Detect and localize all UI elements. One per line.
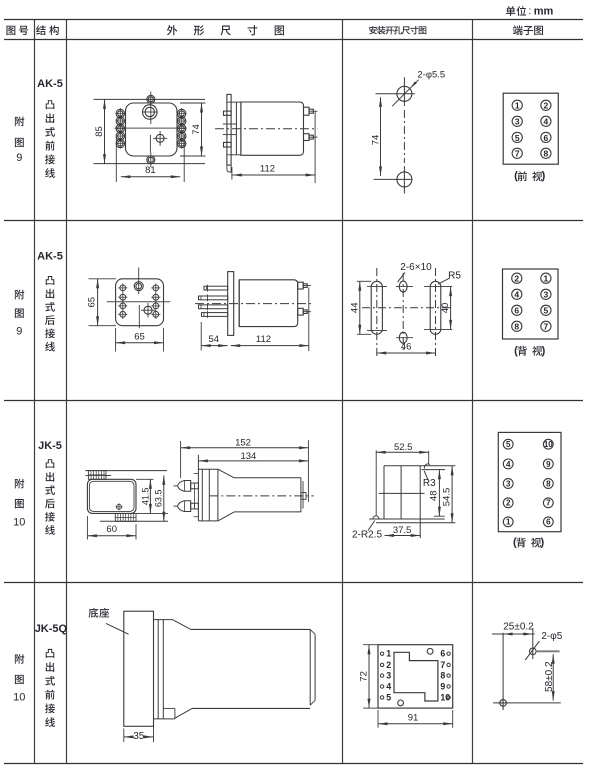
svg-text:41.5: 41.5 <box>140 488 150 506</box>
svg-text:134: 134 <box>240 451 256 462</box>
svg-text:54.5: 54.5 <box>441 488 452 507</box>
svg-text:1: 1 <box>506 518 511 527</box>
svg-text:5: 5 <box>506 440 511 449</box>
svg-text:8: 8 <box>514 322 519 332</box>
svg-text:58±0.2: 58±0.2 <box>544 661 555 692</box>
svg-text:1: 1 <box>544 274 549 284</box>
svg-text:R5: R5 <box>448 271 461 282</box>
svg-text:6: 6 <box>546 518 551 527</box>
svg-text:): ) <box>542 345 546 357</box>
svg-text:2: 2 <box>506 499 511 508</box>
svg-text:5: 5 <box>386 692 391 702</box>
svg-text:3: 3 <box>544 290 549 300</box>
svg-text:112: 112 <box>256 334 271 345</box>
svg-text:9: 9 <box>16 326 22 338</box>
svg-text:8: 8 <box>440 671 445 681</box>
svg-text:25±0.2: 25±0.2 <box>503 622 534 633</box>
svg-text:152: 152 <box>235 438 251 449</box>
svg-text:9: 9 <box>16 152 22 164</box>
svg-text:7: 7 <box>544 322 549 332</box>
svg-text:65: 65 <box>134 331 145 342</box>
svg-text:35: 35 <box>133 731 145 742</box>
svg-text:AK-5: AK-5 <box>37 251 63 263</box>
svg-text:mm: mm <box>534 5 554 17</box>
svg-text:10: 10 <box>544 440 553 449</box>
svg-text:2-R2.5: 2-R2.5 <box>352 530 382 541</box>
svg-text:(: ( <box>514 345 518 357</box>
svg-text:2-φ5: 2-φ5 <box>541 631 562 642</box>
svg-text::: : <box>528 5 531 17</box>
svg-text:): ) <box>542 170 546 182</box>
svg-text:6: 6 <box>514 306 519 316</box>
svg-text:AK-5: AK-5 <box>37 78 63 90</box>
svg-text:(: ( <box>513 537 517 549</box>
svg-text:48: 48 <box>429 491 440 502</box>
svg-text:10: 10 <box>13 516 25 528</box>
svg-text:91: 91 <box>408 712 419 723</box>
svg-text:46: 46 <box>401 342 412 353</box>
svg-text:4: 4 <box>514 290 519 300</box>
svg-text:1: 1 <box>386 649 391 659</box>
svg-text:7: 7 <box>440 660 445 670</box>
svg-text:44: 44 <box>349 303 360 314</box>
svg-text:10: 10 <box>440 692 450 702</box>
svg-text:5: 5 <box>544 306 549 316</box>
svg-text:JK-5: JK-5 <box>38 440 62 452</box>
svg-text:54: 54 <box>209 334 220 345</box>
svg-text:81: 81 <box>145 165 156 176</box>
svg-text:63.5: 63.5 <box>154 490 164 508</box>
svg-text:52.5: 52.5 <box>394 442 413 453</box>
svg-text:8: 8 <box>544 149 549 159</box>
svg-text:40: 40 <box>440 303 451 314</box>
svg-text:2: 2 <box>544 101 549 111</box>
svg-text:37.5: 37.5 <box>393 525 412 536</box>
svg-text:9: 9 <box>440 682 445 692</box>
svg-text:R3: R3 <box>423 478 436 489</box>
svg-text:3: 3 <box>386 671 391 681</box>
svg-text:72: 72 <box>358 671 369 682</box>
svg-text:9: 9 <box>546 460 551 469</box>
svg-text:65: 65 <box>87 297 98 308</box>
svg-text:6: 6 <box>440 649 445 659</box>
svg-text:4: 4 <box>506 460 511 469</box>
svg-text:5: 5 <box>515 133 520 143</box>
svg-text:7: 7 <box>546 499 551 508</box>
svg-text:112: 112 <box>260 164 275 175</box>
svg-text:3: 3 <box>515 117 520 127</box>
svg-text:2: 2 <box>514 274 519 284</box>
svg-text:85: 85 <box>94 126 105 137</box>
svg-text:2: 2 <box>386 660 391 670</box>
svg-text:74: 74 <box>191 124 202 135</box>
svg-text:3: 3 <box>506 479 511 488</box>
svg-text:): ) <box>540 537 544 549</box>
svg-text:4: 4 <box>544 117 549 127</box>
svg-text:7: 7 <box>515 149 520 159</box>
svg-text:2-φ5.5: 2-φ5.5 <box>417 70 445 81</box>
svg-text:8: 8 <box>546 479 551 488</box>
svg-text:1: 1 <box>515 101 520 111</box>
svg-text:4: 4 <box>386 682 391 692</box>
svg-text:60: 60 <box>106 524 117 535</box>
svg-text:10: 10 <box>13 691 25 703</box>
svg-text:JK-5Q: JK-5Q <box>35 623 68 635</box>
svg-text:6: 6 <box>544 133 549 143</box>
svg-text:74: 74 <box>370 135 381 146</box>
svg-text:2-6×10: 2-6×10 <box>400 262 432 273</box>
svg-text:(: ( <box>514 170 518 182</box>
